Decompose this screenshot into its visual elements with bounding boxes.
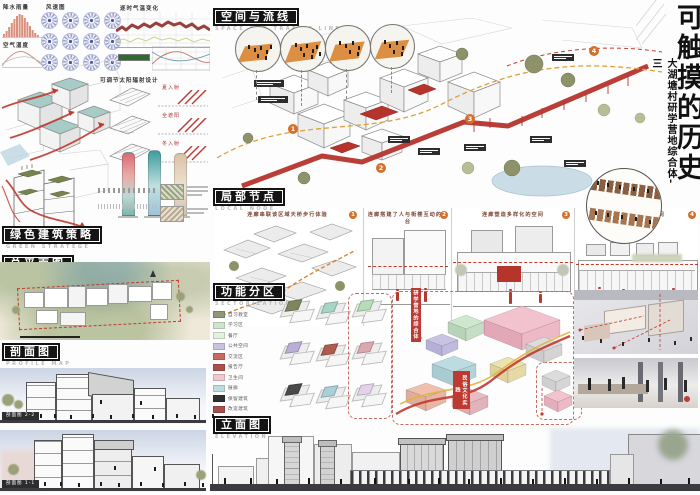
windrose-icon [62,12,79,29]
ground-line [0,488,206,491]
tree-icon [12,306,20,314]
legend-swatch [213,395,225,402]
detail-bubble [325,25,371,71]
louver-diagram [108,86,152,108]
people-silhouettes [295,43,297,47]
zoning-header: 功能分区 [213,283,285,301]
tree-icon [8,464,19,475]
people-silhouettes [40,414,42,418]
node-caption-3: 连廊塑造多样化的空间 [453,211,573,218]
tree-icon [196,470,206,480]
circulation-line [576,264,698,265]
plan-building [150,304,168,320]
legend-item: 保留建筑 [213,394,277,403]
people-silhouettes [597,181,599,185]
red-marker-dot [684,396,690,402]
section-building [56,374,92,422]
tower-caption-placeholder [118,216,138,218]
windrose-icon [83,33,100,50]
column [678,362,683,402]
zoning-tag-2: 民俗文化实践 [453,371,470,409]
people-silhouettes [595,211,597,215]
legend-item: 卫生间 [213,373,277,382]
legend-swatch [213,332,225,339]
cornice [446,434,504,441]
guesthouse-zoning-axon [538,364,578,416]
bubble-leader [256,70,257,100]
detail-bubble [370,24,415,69]
axon-render [574,290,698,354]
presentation-board: 降水雨量 空气湿度 风速图 逐时气温变化 [0,0,700,495]
framed-picture [610,242,630,256]
zoning-mini-axon [280,338,314,368]
tree-icon [2,394,14,406]
marker-3: 3 [465,114,475,124]
people-silhouettes [248,45,250,49]
plaza-floor [329,41,365,61]
elevation-drawing [210,428,700,492]
watchtower-crown [282,436,302,443]
paving-detail [160,206,184,222]
legend-swatch [213,322,225,329]
section-building [62,434,94,490]
detail-bubble [280,26,326,72]
bubble-leader [391,67,392,93]
column [638,362,643,402]
people-silhouettes [588,378,591,390]
zoning-tag-1: 研学营地的综合体 [411,288,421,342]
section-2-2-label: 剖面图 2-2 [2,412,39,420]
marker-1: 1 [288,124,298,134]
precip-bar-chart [2,10,42,38]
windrose-chart-label: 风速图 [46,3,66,11]
note-line [186,186,208,188]
windrose-icon [62,33,79,50]
sun-ray-diagram [158,118,208,138]
section-roof [94,440,134,450]
section-2-2-drawing: 剖面图 2-2 [0,368,206,424]
people-silhouettes [44,482,46,486]
legend-item: 报告厅 [213,363,277,372]
note-line [186,208,208,210]
legend-item: 展廊 [213,384,277,393]
plaza-floor [238,44,273,63]
node-number-3: 3 [562,211,570,219]
dashed-frame [348,293,392,419]
bubble-leader [301,70,302,106]
poster-subtitle: 大湖塘村研学营地综合体-三 [648,58,678,194]
plaza-floor [285,41,322,63]
corridor-band [589,178,662,201]
temperature-chart [116,11,210,51]
legend-swatch [213,311,225,318]
node-number-1: 1 [349,211,357,219]
red-feature-wall [497,266,521,282]
legend-swatch [213,364,225,371]
profile-header-en: PROFILE MAP [6,361,71,367]
comfort-chart [152,46,210,72]
section-building [164,464,200,490]
windrose-icon [41,33,58,50]
people-silhouettes [384,40,386,44]
elevation-building [610,454,634,486]
legend-swatch [213,353,225,360]
column [658,362,663,402]
windrose-icon [83,12,100,29]
profile-header: 剖面图 [2,343,60,361]
green-strategy-section [0,150,112,236]
legend-swatch [213,374,225,381]
tree-icon [14,400,23,409]
watchtower [320,444,335,486]
zoning-mini-axon [280,380,314,410]
legend-item: 公共空间 [213,342,277,351]
plan-building [152,282,172,300]
people-silhouettes [339,41,341,45]
cornice [398,438,446,445]
magnifier-detail [586,168,662,244]
plan-building [44,288,68,308]
node-caption-1: 连廊串联该区域天桥步行体验 [214,211,361,218]
nodes-header: 局部节点 [213,188,285,206]
note-line [186,212,204,214]
circulation-line [368,266,448,267]
plaza-floor [375,40,410,60]
section-building [94,446,132,490]
section-building [132,456,164,490]
detail-hatch-strip [98,204,156,209]
sun-ray-diagram [158,90,208,110]
node-caption-2: 连廊搭建了人与街楼互动的平台 [366,211,450,225]
framed-picture [586,244,606,256]
green-strategy-header-en: GREEN STRATEGE [6,244,90,250]
marker-4: 4 [589,46,599,56]
detail-hatch-strip [98,188,156,193]
plinth-band [210,484,700,491]
tree-icon [176,292,185,301]
zoning-mini-axon [280,296,314,326]
interior-render [574,358,698,408]
plan-building [86,288,108,306]
note-line [186,194,202,196]
plan-building [108,284,128,304]
render-leader-lines [574,290,698,354]
node-number-2: 2 [440,211,448,219]
legend-swatch [213,343,225,350]
windrose-icon [41,12,58,29]
plan-building [68,286,86,308]
colonnade [372,274,446,289]
sketch-lines [636,0,666,46]
tree-icon [658,430,688,460]
plan-building [24,292,44,308]
legend-swatch [213,385,225,392]
ground-line [0,420,206,423]
nodes-header-en: LOCAL NODE [215,206,276,212]
marker-2: 2 [376,163,386,173]
bubble-leader [346,69,347,99]
legend-item: 餐厅 [213,331,277,340]
legend-item: 改造建筑 [213,405,277,414]
green-roof-detail [160,184,184,200]
zoning-legend: 自习教室 学习区 餐厅 公共空间 交流区 报告厅 卫生间 展廊 保留建筑 改造建… [213,310,277,426]
watchtower [284,440,300,486]
section-building [166,398,200,422]
node-number-4: 4 [688,211,696,219]
zoning-mini-axon [316,298,350,328]
plan-building [60,312,86,326]
legend-item: 学习区 [213,321,277,330]
green-strategy-header: 绿色建筑策略 [2,226,102,244]
plan-scale-bar [20,336,80,338]
legend-item: 自习教室 [213,310,277,319]
tree-icon [455,264,467,276]
legend-swatch [213,406,225,413]
section-1-1-label: 剖面图 1-1 [2,480,39,488]
tree-icon [557,264,569,276]
scale-bar [118,54,150,61]
section-1-1-drawing: 剖面图 1-1 [0,430,206,492]
legend-item: 交流区 [213,352,277,361]
flag-pole [212,454,213,484]
roof-garden [632,254,682,262]
circulation-line [453,262,573,263]
master-plan-drawing [0,262,210,340]
corridor-band [587,207,662,230]
zoning-mini-axon [316,382,350,412]
detail-bubble [235,26,281,72]
louver-diagram [108,114,152,136]
tree-icon [186,306,193,313]
north-arrow-icon [150,270,156,277]
zoning-mini-axon [316,340,350,370]
plan-building [36,310,58,324]
plan-building [128,286,152,302]
people-silhouettes [582,336,584,340]
section-building [134,388,166,422]
section-building [92,394,134,422]
watchtower-crown [318,440,337,447]
solar-study-title: 可调节太阳辐射设计 [100,76,159,84]
note-line [186,190,208,192]
